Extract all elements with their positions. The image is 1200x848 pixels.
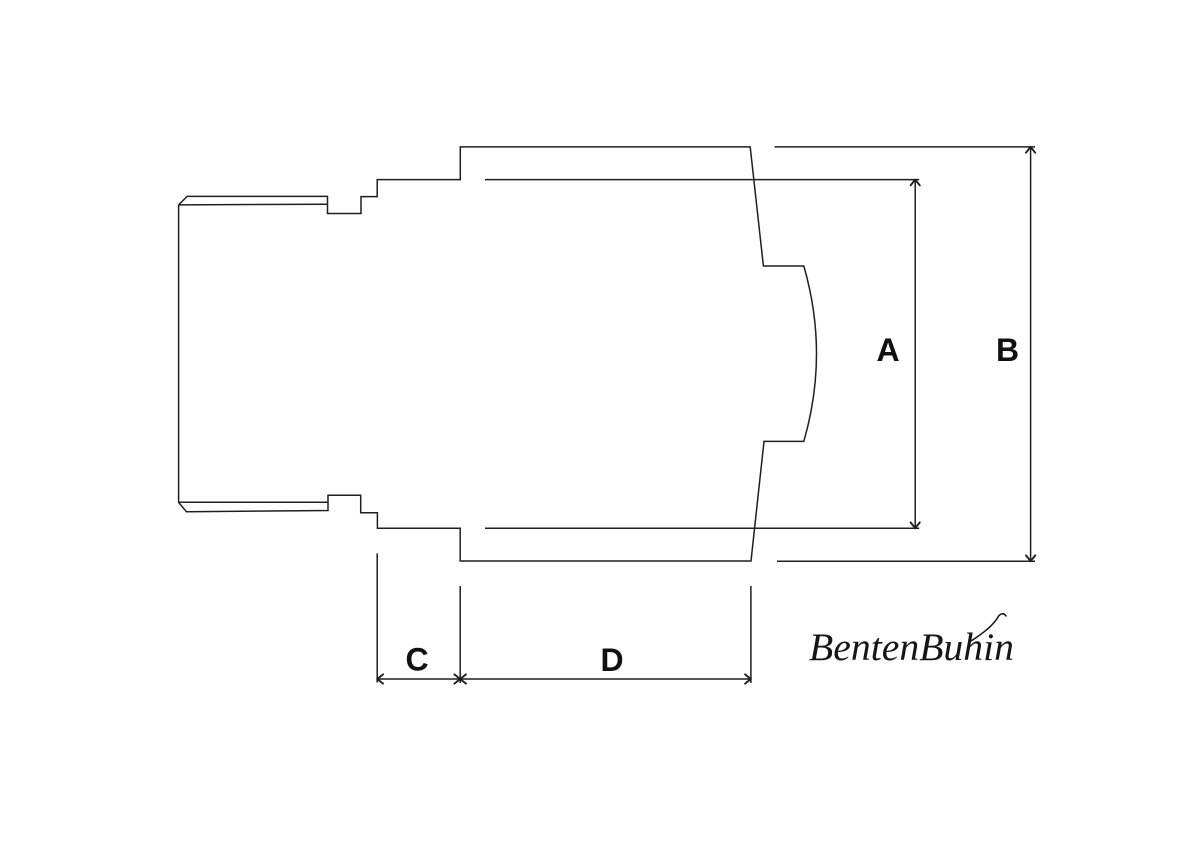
svg-text:B: B (996, 332, 1019, 368)
svg-text:D: D (600, 642, 623, 678)
svg-text:A: A (876, 332, 899, 368)
svg-text:C: C (405, 642, 428, 678)
